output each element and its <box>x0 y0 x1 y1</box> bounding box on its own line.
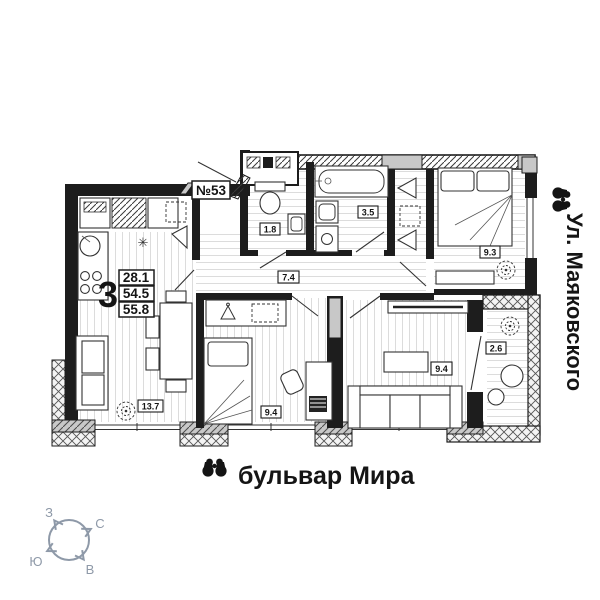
compass-east: В <box>86 562 95 577</box>
room-area-label: 9.4 <box>435 364 448 374</box>
area-value: 54.5 <box>123 286 150 301</box>
apartment-number-leader <box>198 162 236 182</box>
living-area-value: 28.1 <box>123 270 150 285</box>
room-area-label: 9.3 <box>484 248 497 258</box>
apartment-number-badge: №53 <box>192 181 230 199</box>
wardrobe-icon <box>206 300 286 326</box>
bathtub-icon <box>315 166 388 197</box>
room-area-label: 2.6 <box>490 344 503 354</box>
room-area-label: 13.7 <box>142 402 160 412</box>
room-area-label: 1.8 <box>264 225 277 235</box>
chair-icon <box>488 389 504 405</box>
fridge-icon: ✳ <box>138 235 149 250</box>
room-area-label: 7.4 <box>282 273 295 283</box>
room-area-label: 9.4 <box>265 408 278 418</box>
street-label-bottom-group: бульвар Мира <box>202 459 415 490</box>
apartment-number: №53 <box>196 183 227 198</box>
washing-machine-icon <box>316 226 338 252</box>
round-table-icon <box>501 365 523 387</box>
bathroom-sink-icon <box>316 201 338 223</box>
kitchen-cabinet <box>148 198 178 228</box>
wc-sink-icon <box>288 214 305 234</box>
single-bed-icon <box>204 338 252 424</box>
binoculars-icon <box>202 459 226 477</box>
compass: З С Ю В <box>29 505 104 577</box>
dresser-icon <box>436 271 494 284</box>
floor-plan: ✳ <box>0 0 600 600</box>
kitchen-sofa-icon <box>76 336 108 410</box>
kitchen-sink-icon <box>80 236 100 256</box>
room-area-label: 3.5 <box>362 208 375 218</box>
compass-west: З <box>45 505 53 520</box>
apartment-info-block: 3 28.1 54.5 55.8 <box>98 270 154 317</box>
sofa-icon <box>348 386 462 428</box>
floor-plan-page: ✳ <box>0 0 600 600</box>
vestibule-floor <box>395 169 426 232</box>
compass-south: Ю <box>29 554 42 569</box>
total-area-value: 55.8 <box>123 302 150 317</box>
compass-north: С <box>95 516 104 531</box>
binoculars-icon <box>552 187 570 211</box>
street-label-bottom: бульвар Мира <box>238 462 416 490</box>
stairwell-block <box>242 152 298 185</box>
street-label-right: Ул. Маяковского <box>562 213 587 391</box>
tv-stand-icon <box>388 301 468 313</box>
kitchen-cabinet <box>112 198 146 228</box>
rooms-count: 3 <box>98 274 118 315</box>
street-label-right-group: Ул. Маяковского <box>552 187 587 391</box>
coffee-table-icon <box>384 352 428 372</box>
double-bed-icon <box>438 168 512 246</box>
